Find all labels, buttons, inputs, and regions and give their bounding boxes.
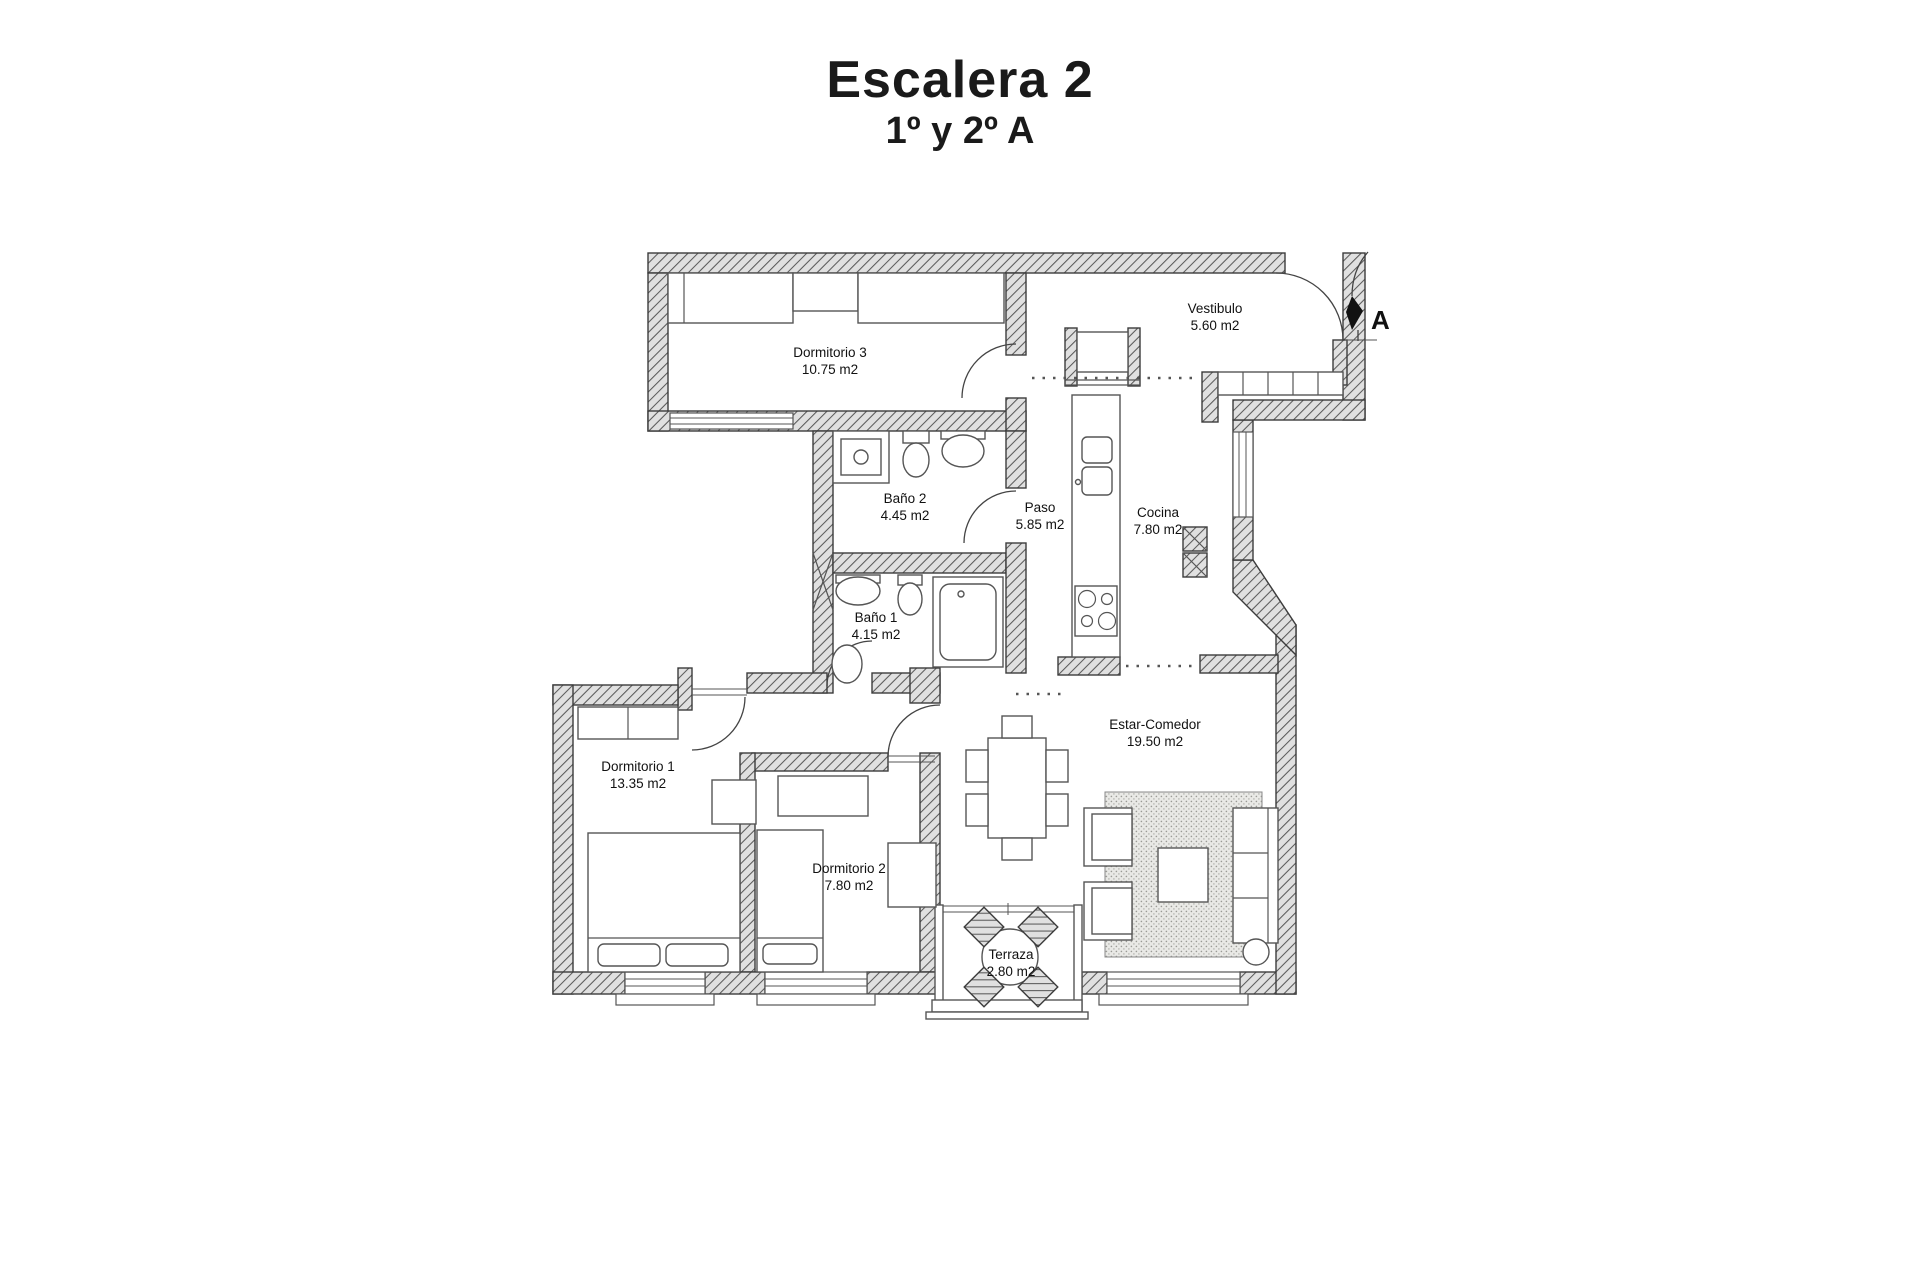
window-estar [1099, 972, 1248, 1005]
room-area-dormitorio2: 7.80 m2 [825, 878, 874, 893]
bidet-icon [832, 645, 862, 683]
side-table-icon [1243, 939, 1269, 965]
room-label-dormitorio3: Dormitorio 3 [793, 345, 867, 360]
single-bed-icon [757, 830, 823, 972]
room-area-paso: 5.85 m2 [1016, 517, 1065, 532]
sink-icon [941, 431, 985, 467]
kitchen-counter-icon [1072, 395, 1120, 657]
door-bano2 [964, 491, 1016, 543]
dining-set-icon [966, 716, 1068, 860]
room-label-cocina: Cocina [1137, 505, 1180, 520]
window-dormitorio2 [757, 972, 875, 1005]
closet-icon [578, 707, 678, 739]
room-area-bano1: 4.15 m2 [852, 627, 901, 642]
room-label-bano1: Baño 1 [855, 610, 898, 625]
room-area-terraza: 2.80 m2 [987, 964, 1036, 979]
dormitorio3-wardrobe-icon [668, 273, 1004, 323]
room-area-vestibulo: 5.60 m2 [1191, 318, 1240, 333]
nightstand-icon [888, 843, 936, 907]
living-set-icon [1084, 792, 1278, 965]
room-area-dormitorio3: 10.75 m2 [802, 362, 858, 377]
room-label-estar-comedor: Estar-Comedor [1109, 717, 1201, 732]
armchair-icon [1084, 882, 1132, 940]
room-label-paso: Paso [1025, 500, 1056, 515]
room-area-estar-comedor: 19.50 m2 [1127, 734, 1183, 749]
room-label-dormitorio1: Dormitorio 1 [601, 759, 675, 774]
wardrobe-icon [778, 776, 868, 816]
room-area-bano2: 4.45 m2 [881, 508, 930, 523]
room-label-bano2: Baño 2 [884, 491, 927, 506]
room-label-vestibulo: Vestibulo [1188, 301, 1243, 316]
toilet-icon [903, 431, 929, 477]
armchair-icon [1084, 808, 1132, 866]
window-dormitorio3-patio [670, 413, 793, 429]
window-cocina [1233, 432, 1253, 517]
entrance-door-arc [1276, 273, 1343, 340]
door-dormitorio2 [888, 705, 940, 757]
room-label-dormitorio2: Dormitorio 2 [812, 861, 886, 876]
window-dormitorio1 [616, 972, 714, 1005]
nightstand-icon [712, 780, 756, 824]
bano2-fixtures [833, 431, 985, 483]
stove-icon [1075, 586, 1117, 636]
bathtub-icon [933, 577, 1003, 667]
room-label-terraza: Terraza [988, 947, 1034, 962]
furniture-layer [578, 273, 1343, 1007]
room-area-cocina: 7.80 m2 [1134, 522, 1183, 537]
sofa-icon [1233, 808, 1278, 943]
vestibulo-closet-icon [1218, 372, 1343, 395]
sink-icon [836, 575, 880, 605]
vanity-sink-icon [833, 431, 889, 483]
room-area-dormitorio1: 13.35 m2 [610, 776, 666, 791]
toilet-icon [898, 575, 922, 615]
coffee-table-icon [1158, 848, 1208, 902]
floor-plan: A Dormitorio 3 10.75 m2 Vestibulo 5.60 m… [0, 0, 1920, 1280]
door-dormitorio1 [692, 697, 745, 750]
double-bed-icon [588, 833, 740, 972]
dormitorio1-furniture [578, 707, 756, 972]
entrance-marker-label: A [1371, 305, 1390, 335]
